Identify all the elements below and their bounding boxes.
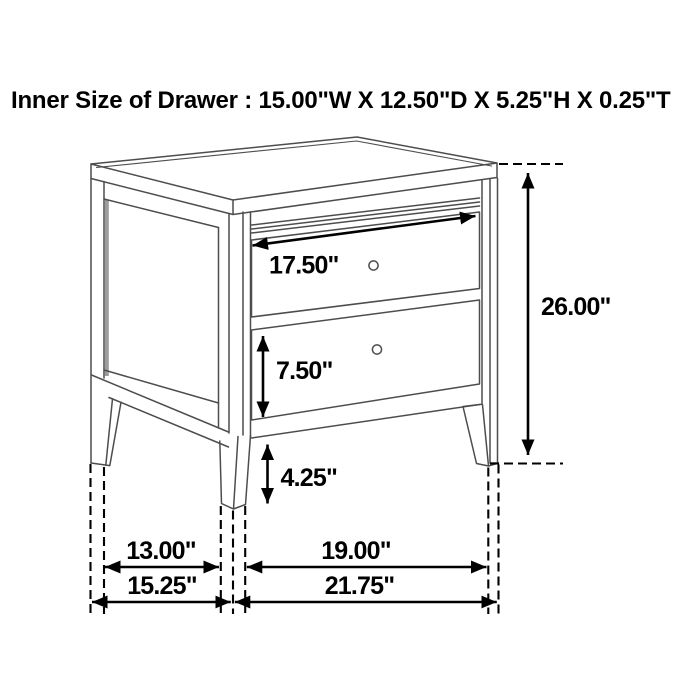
dimension-label: 17.50" [269,252,339,280]
back-left-leg [91,399,121,466]
side-bottom-rail-bottom [109,398,229,448]
dimension-label: 7.50" [276,357,333,385]
dimension-label: 13.00" [126,537,196,565]
dimension-label: 19.00" [321,537,391,565]
front-right-leg [463,404,499,466]
dimension-front-inner-spacing: 19.00" [247,537,487,567]
nightstand-drawing [91,137,499,509]
nightstand-dimension-diagram: Inner Size of Drawer : 15.00"W X 12.50"D… [0,0,700,700]
dimension-overall-depth: 15.25" [92,572,231,602]
side-top-rail [104,199,219,228]
drawer-knob-bottom [372,345,381,354]
dimension-side-inner-spacing: 13.00" [105,537,219,567]
table-top [91,137,497,200]
page-title: Inner Size of Drawer : 15.00"W X 12.50"D… [11,87,671,114]
dimension-label: 4.25" [281,464,338,492]
side-panel [91,179,229,464]
front-left-leg [220,436,251,510]
dimension-label: 15.25" [127,572,197,600]
drawer-knob-top [369,261,378,270]
dimension-leg-height: 4.25" [268,445,338,504]
front-left-post [229,212,251,437]
panel-shadow [105,200,109,376]
dimension-label: 21.75" [325,572,395,600]
drawer-fronts [252,198,480,438]
dimension-overall-height: 26.00" [528,173,611,455]
dimension-label: 26.00" [541,293,611,321]
side-panel-bottom-edge [104,370,219,403]
dimension-overall-width: 21.75" [235,572,497,602]
